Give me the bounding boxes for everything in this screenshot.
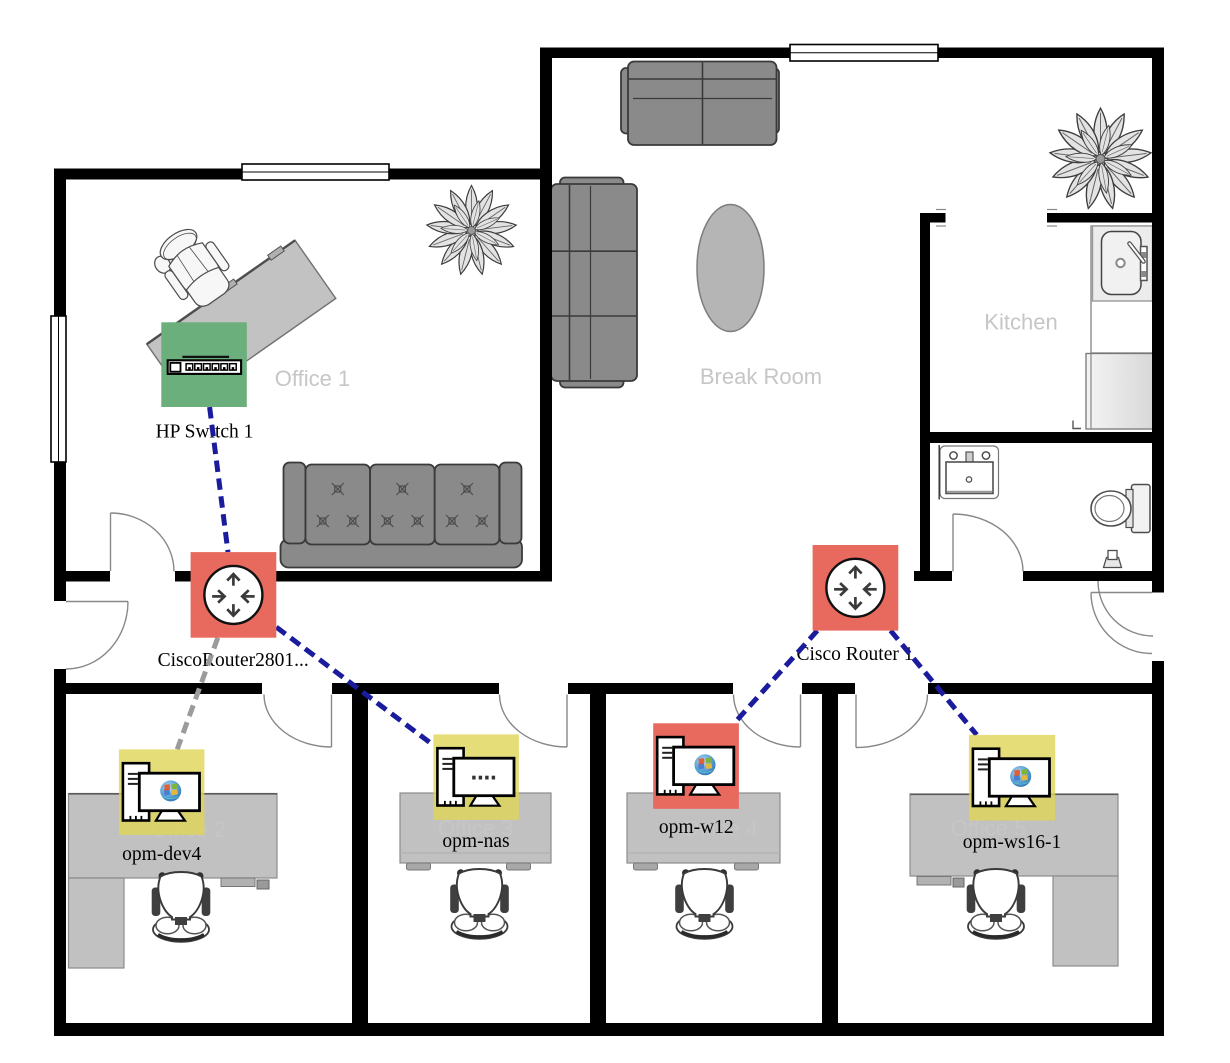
svg-text:Break Room: Break Room xyxy=(700,364,822,389)
svg-text:HP Switch 1: HP Switch 1 xyxy=(156,422,254,443)
svg-text:opm-dev4: opm-dev4 xyxy=(122,844,201,865)
svg-text:opm-ws16-1: opm-ws16-1 xyxy=(963,832,1062,853)
svg-text:Cisco Router 1: Cisco Router 1 xyxy=(797,644,914,665)
svg-text:Office 1: Office 1 xyxy=(275,366,350,391)
svg-text:Kitchen: Kitchen xyxy=(984,310,1057,335)
svg-text:CiscoRouter2801...: CiscoRouter2801... xyxy=(158,650,309,671)
svg-text:opm-nas: opm-nas xyxy=(442,831,509,852)
svg-text:opm-w12: opm-w12 xyxy=(659,817,734,838)
